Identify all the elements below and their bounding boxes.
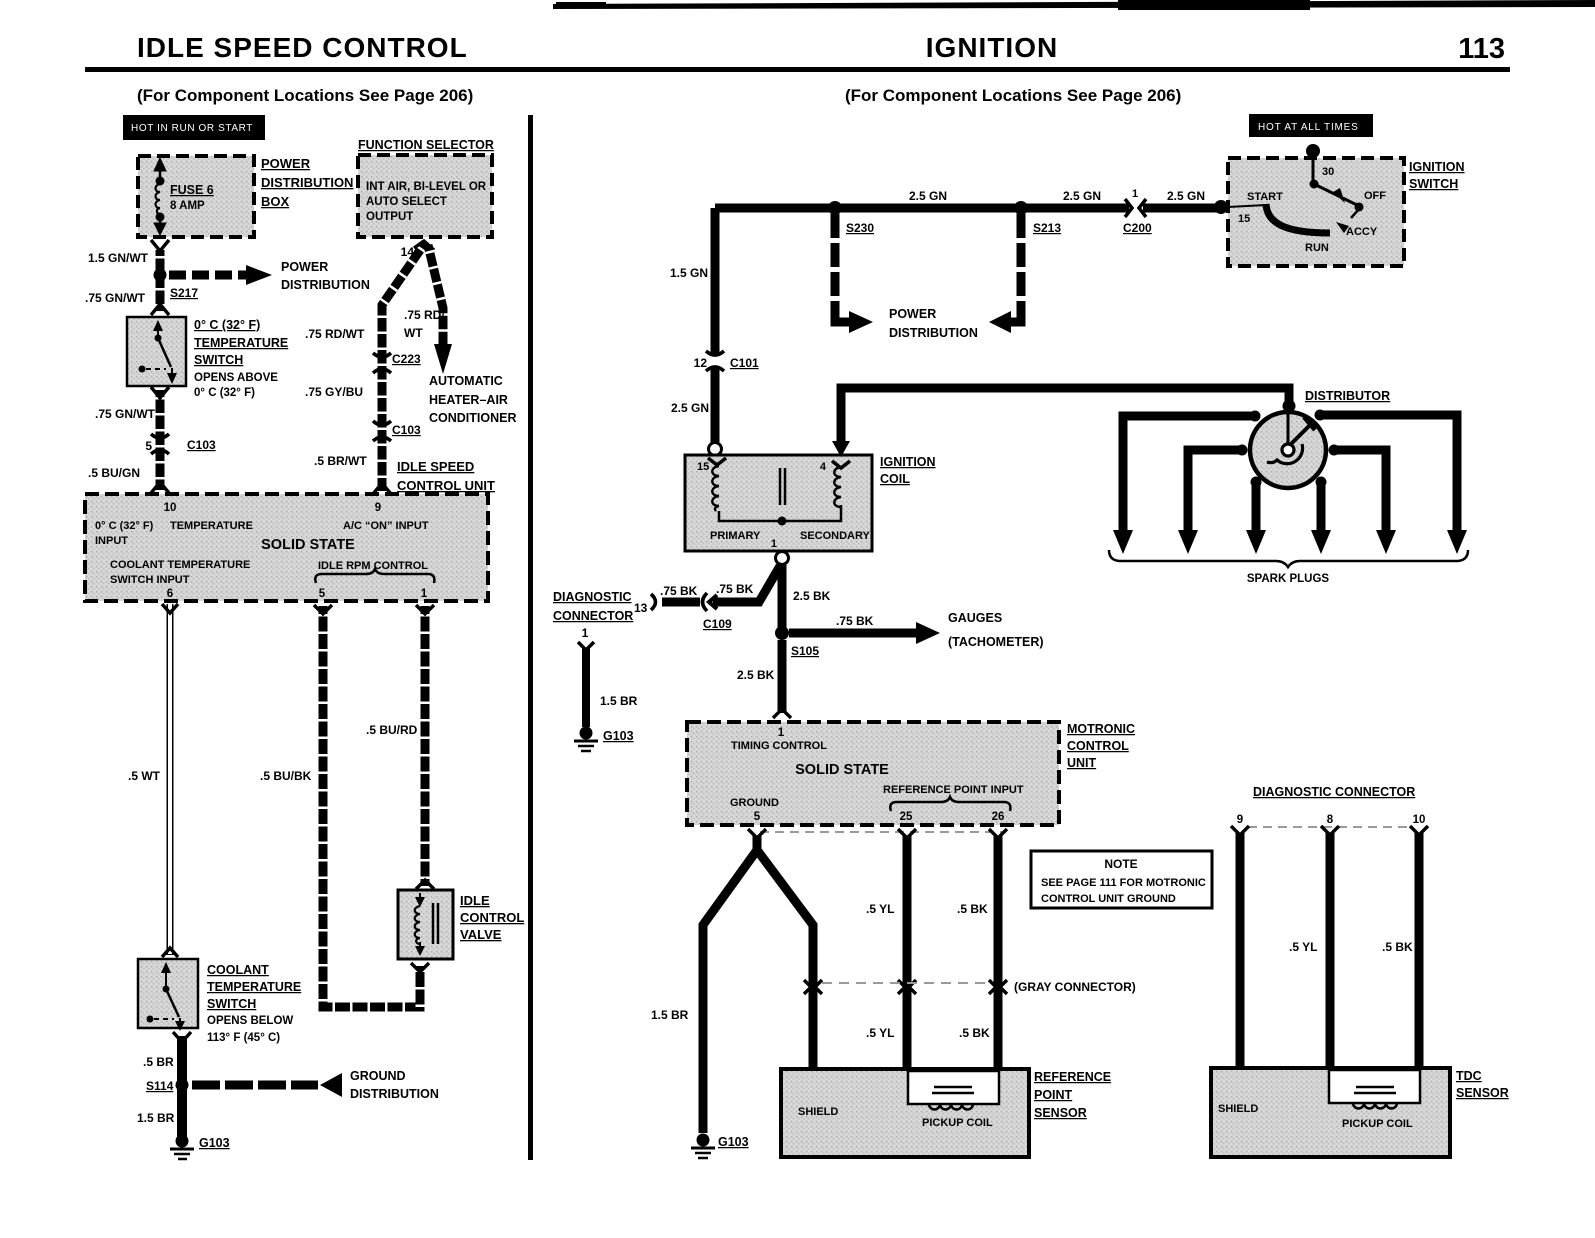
svg-text:5: 5 bbox=[145, 439, 152, 453]
svg-text:START: START bbox=[1247, 191, 1283, 203]
svg-text:.5 WT: .5 WT bbox=[128, 769, 161, 783]
svg-text:.5 BU/GN: .5 BU/GN bbox=[88, 466, 140, 480]
svg-text:VALVE: VALVE bbox=[460, 927, 502, 942]
svg-text:AUTOMATIC: AUTOMATIC bbox=[429, 374, 503, 388]
svg-text:GROUND: GROUND bbox=[730, 797, 779, 809]
svg-text:1: 1 bbox=[1132, 188, 1138, 200]
svg-text:GAUGES: GAUGES bbox=[948, 611, 1002, 625]
svg-text:C223: C223 bbox=[392, 352, 421, 366]
svg-text:CONTROL: CONTROL bbox=[1067, 739, 1129, 753]
svg-text:IDLE SPEED: IDLE SPEED bbox=[397, 459, 474, 474]
svg-text:IGNITION: IGNITION bbox=[926, 32, 1058, 63]
svg-text:1: 1 bbox=[778, 727, 785, 739]
svg-text:G103: G103 bbox=[718, 1135, 749, 1149]
svg-text:(TACHOMETER): (TACHOMETER) bbox=[948, 635, 1044, 649]
svg-text:26: 26 bbox=[992, 811, 1005, 823]
svg-text:SWITCH: SWITCH bbox=[1409, 177, 1458, 191]
svg-text:OPENS ABOVE: OPENS ABOVE bbox=[194, 372, 278, 384]
svg-text:COOLANT: COOLANT bbox=[207, 963, 269, 977]
svg-text:BOX: BOX bbox=[261, 194, 290, 209]
svg-text:.75 BK: .75 BK bbox=[660, 584, 698, 598]
svg-text:HOT IN RUN OR START: HOT IN RUN OR START bbox=[131, 123, 253, 134]
svg-text:.5 YL: .5 YL bbox=[1289, 940, 1317, 954]
svg-text:13: 13 bbox=[634, 601, 648, 615]
svg-text:IDLE SPEED CONTROL: IDLE SPEED CONTROL bbox=[137, 32, 468, 63]
svg-text:WT: WT bbox=[404, 326, 423, 340]
svg-text:25: 25 bbox=[900, 811, 913, 823]
svg-text:TEMPERATURE: TEMPERATURE bbox=[170, 520, 253, 532]
svg-text:SENSOR: SENSOR bbox=[1034, 1106, 1087, 1120]
svg-text:.75 BK: .75 BK bbox=[716, 582, 754, 596]
svg-text:8: 8 bbox=[1327, 814, 1334, 826]
svg-text:0° C (32° F): 0° C (32° F) bbox=[95, 520, 154, 532]
svg-text:.75 GN/WT: .75 GN/WT bbox=[85, 291, 146, 305]
svg-text:1.5 BR: 1.5 BR bbox=[600, 694, 638, 708]
svg-text:CONTROL: CONTROL bbox=[460, 910, 524, 925]
svg-text:MOTRONIC: MOTRONIC bbox=[1067, 722, 1135, 736]
svg-text:AUTO SELECT: AUTO SELECT bbox=[366, 196, 447, 208]
svg-text:POWER: POWER bbox=[281, 260, 328, 274]
svg-text:15: 15 bbox=[697, 461, 709, 473]
svg-text:COIL: COIL bbox=[880, 472, 910, 486]
svg-text:1: 1 bbox=[421, 588, 428, 600]
svg-text:10: 10 bbox=[164, 502, 177, 514]
svg-text:8 AMP: 8 AMP bbox=[170, 200, 205, 212]
svg-text:DISTRIBUTION: DISTRIBUTION bbox=[889, 326, 978, 340]
svg-text:INT AIR, BI-LEVEL OR: INT AIR, BI-LEVEL OR bbox=[366, 181, 487, 193]
svg-text:.5 YL: .5 YL bbox=[866, 902, 894, 916]
svg-text:2.5 GN: 2.5 GN bbox=[1167, 189, 1205, 203]
svg-text:(GRAY CONNECTOR): (GRAY CONNECTOR) bbox=[1014, 980, 1136, 994]
svg-text:SECONDARY: SECONDARY bbox=[800, 530, 871, 542]
svg-text:FUSE 6: FUSE 6 bbox=[170, 183, 214, 197]
svg-text:2.5 GN: 2.5 GN bbox=[671, 401, 709, 415]
svg-text:SOLID STATE: SOLID STATE bbox=[261, 537, 355, 553]
svg-text:113° F (45° C): 113° F (45° C) bbox=[207, 1032, 280, 1044]
svg-text:(For Component Locations See P: (For Component Locations See Page 206) bbox=[137, 86, 473, 105]
svg-text:COOLANT TEMPERATURE: COOLANT TEMPERATURE bbox=[110, 559, 250, 571]
svg-text:G103: G103 bbox=[603, 729, 634, 743]
svg-text:CONTROL UNIT: CONTROL UNIT bbox=[397, 478, 495, 493]
svg-text:UNIT: UNIT bbox=[1067, 756, 1097, 770]
svg-text:C101: C101 bbox=[730, 356, 759, 370]
svg-text:HOT AT ALL TIMES: HOT AT ALL TIMES bbox=[1258, 122, 1359, 133]
svg-text:9: 9 bbox=[1237, 814, 1243, 826]
svg-text:.5 BK: .5 BK bbox=[1382, 940, 1413, 954]
svg-text:2.5 GN: 2.5 GN bbox=[1063, 189, 1101, 203]
svg-text:PICKUP COIL: PICKUP COIL bbox=[1342, 1118, 1413, 1130]
svg-text:SPARK PLUGS: SPARK PLUGS bbox=[1247, 573, 1330, 585]
svg-text:POWER: POWER bbox=[889, 307, 936, 321]
svg-text:C103: C103 bbox=[187, 438, 216, 452]
svg-text:TDC: TDC bbox=[1456, 1069, 1482, 1083]
svg-text:DIAGNOSTIC: DIAGNOSTIC bbox=[553, 590, 631, 604]
svg-text:SWITCH INPUT: SWITCH INPUT bbox=[110, 574, 190, 586]
svg-text:SHIELD: SHIELD bbox=[798, 1106, 838, 1118]
svg-text:S114: S114 bbox=[146, 1079, 174, 1093]
svg-text:1.5 GN: 1.5 GN bbox=[670, 266, 708, 280]
svg-text:10: 10 bbox=[1413, 814, 1426, 826]
svg-text:TEMPERATURE: TEMPERATURE bbox=[207, 980, 301, 994]
svg-text:GROUND: GROUND bbox=[350, 1069, 406, 1083]
svg-text:.5 BU/RD: .5 BU/RD bbox=[366, 723, 418, 737]
svg-text:30: 30 bbox=[1322, 166, 1334, 178]
svg-text:.5 BR: .5 BR bbox=[143, 1055, 174, 1069]
svg-text:.5 YL: .5 YL bbox=[866, 1026, 894, 1040]
svg-text:POINT: POINT bbox=[1034, 1088, 1073, 1102]
svg-text:1: 1 bbox=[771, 538, 777, 550]
svg-text:.75 RD/WT: .75 RD/WT bbox=[305, 327, 365, 341]
svg-text:DISTRIBUTOR: DISTRIBUTOR bbox=[1305, 389, 1390, 403]
svg-text:1.5 BR: 1.5 BR bbox=[651, 1008, 689, 1022]
svg-text:12: 12 bbox=[694, 356, 708, 370]
svg-text:DISTRIBUTION: DISTRIBUTION bbox=[350, 1087, 439, 1101]
svg-text:OFF: OFF bbox=[1364, 190, 1386, 202]
svg-text:TEMPERATURE: TEMPERATURE bbox=[194, 336, 288, 350]
svg-text:C109: C109 bbox=[703, 617, 732, 631]
svg-text:ACCY: ACCY bbox=[1346, 226, 1378, 238]
svg-text:OUTPUT: OUTPUT bbox=[366, 211, 413, 223]
svg-text:TIMING CONTROL: TIMING CONTROL bbox=[731, 740, 827, 752]
svg-text:PRIMARY: PRIMARY bbox=[710, 530, 761, 542]
svg-text:1: 1 bbox=[582, 626, 589, 640]
svg-text:NOTE: NOTE bbox=[1104, 857, 1137, 871]
svg-text:0° C (32° F): 0° C (32° F) bbox=[194, 318, 260, 332]
svg-text:DIAGNOSTIC CONNECTOR: DIAGNOSTIC CONNECTOR bbox=[1253, 785, 1415, 799]
svg-text:.5 BR/WT: .5 BR/WT bbox=[314, 454, 367, 468]
svg-text:RUN: RUN bbox=[1305, 242, 1329, 254]
svg-text:SOLID STATE: SOLID STATE bbox=[795, 762, 889, 778]
svg-text:.75 BK: .75 BK bbox=[836, 614, 874, 628]
svg-text:SENSOR: SENSOR bbox=[1456, 1086, 1509, 1100]
svg-text:9: 9 bbox=[375, 502, 381, 514]
svg-text:5: 5 bbox=[754, 811, 761, 823]
svg-text:S230: S230 bbox=[846, 221, 874, 235]
svg-text:S213: S213 bbox=[1033, 221, 1061, 235]
svg-text:CONNECTOR: CONNECTOR bbox=[553, 609, 633, 623]
svg-text:C103: C103 bbox=[392, 423, 421, 437]
svg-text:IGNITION: IGNITION bbox=[1409, 160, 1465, 174]
svg-text:A/C “ON” INPUT: A/C “ON” INPUT bbox=[343, 520, 429, 532]
svg-text:2.5 BK: 2.5 BK bbox=[737, 668, 775, 682]
svg-text:IDLE: IDLE bbox=[460, 893, 490, 908]
svg-text:SEE PAGE 111 FOR MOTRONIC: SEE PAGE 111 FOR MOTRONIC bbox=[1041, 877, 1206, 889]
svg-text:OPENS BELOW: OPENS BELOW bbox=[207, 1015, 293, 1027]
svg-text:HEATER–AIR: HEATER–AIR bbox=[429, 393, 508, 407]
svg-text:CONDITIONER: CONDITIONER bbox=[429, 411, 517, 425]
svg-text:(For Component Locations See P: (For Component Locations See Page 206) bbox=[845, 86, 1181, 105]
svg-text:POWER: POWER bbox=[261, 156, 311, 171]
svg-text:SWITCH: SWITCH bbox=[207, 997, 256, 1011]
svg-text:CONTROL UNIT GROUND: CONTROL UNIT GROUND bbox=[1041, 893, 1176, 905]
svg-text:1.5 BR: 1.5 BR bbox=[137, 1111, 175, 1125]
svg-text:REFERENCE POINT INPUT: REFERENCE POINT INPUT bbox=[883, 784, 1024, 796]
svg-text:PICKUP COIL: PICKUP COIL bbox=[922, 1117, 993, 1129]
svg-text:.5 BK: .5 BK bbox=[957, 902, 988, 916]
svg-text:0° C (32° F): 0° C (32° F) bbox=[194, 387, 255, 399]
svg-text:DISTRIBUTION: DISTRIBUTION bbox=[281, 278, 370, 292]
svg-text:2.5 BK: 2.5 BK bbox=[793, 589, 831, 603]
svg-text:.75 GN/WT: .75 GN/WT bbox=[95, 407, 156, 421]
svg-text:DISTRIBUTION: DISTRIBUTION bbox=[261, 175, 353, 190]
svg-text:S217: S217 bbox=[170, 286, 198, 300]
svg-text:15: 15 bbox=[1238, 213, 1250, 225]
svg-text:4: 4 bbox=[820, 461, 827, 473]
svg-text:.75 RD/: .75 RD/ bbox=[404, 308, 445, 322]
svg-text:6: 6 bbox=[167, 588, 173, 600]
svg-text:IGNITION: IGNITION bbox=[880, 455, 936, 469]
svg-text:REFERENCE: REFERENCE bbox=[1034, 1070, 1111, 1084]
svg-text:.5 BU/BK: .5 BU/BK bbox=[260, 769, 312, 783]
svg-text:.75 GY/BU: .75 GY/BU bbox=[305, 385, 363, 399]
svg-text:G103: G103 bbox=[199, 1136, 230, 1150]
svg-text:SWITCH: SWITCH bbox=[194, 353, 243, 367]
svg-text:5: 5 bbox=[319, 588, 326, 600]
svg-text:.5 BK: .5 BK bbox=[959, 1026, 990, 1040]
svg-text:113: 113 bbox=[1458, 33, 1505, 65]
svg-text:SHIELD: SHIELD bbox=[1218, 1103, 1258, 1115]
svg-text:2.5 GN: 2.5 GN bbox=[909, 189, 947, 203]
svg-text:INPUT: INPUT bbox=[95, 535, 128, 547]
svg-text:1.5 GN/WT: 1.5 GN/WT bbox=[88, 251, 149, 265]
svg-text:C200: C200 bbox=[1123, 221, 1152, 235]
svg-text:FUNCTION SELECTOR: FUNCTION SELECTOR bbox=[358, 138, 494, 152]
svg-text:S105: S105 bbox=[791, 644, 819, 658]
